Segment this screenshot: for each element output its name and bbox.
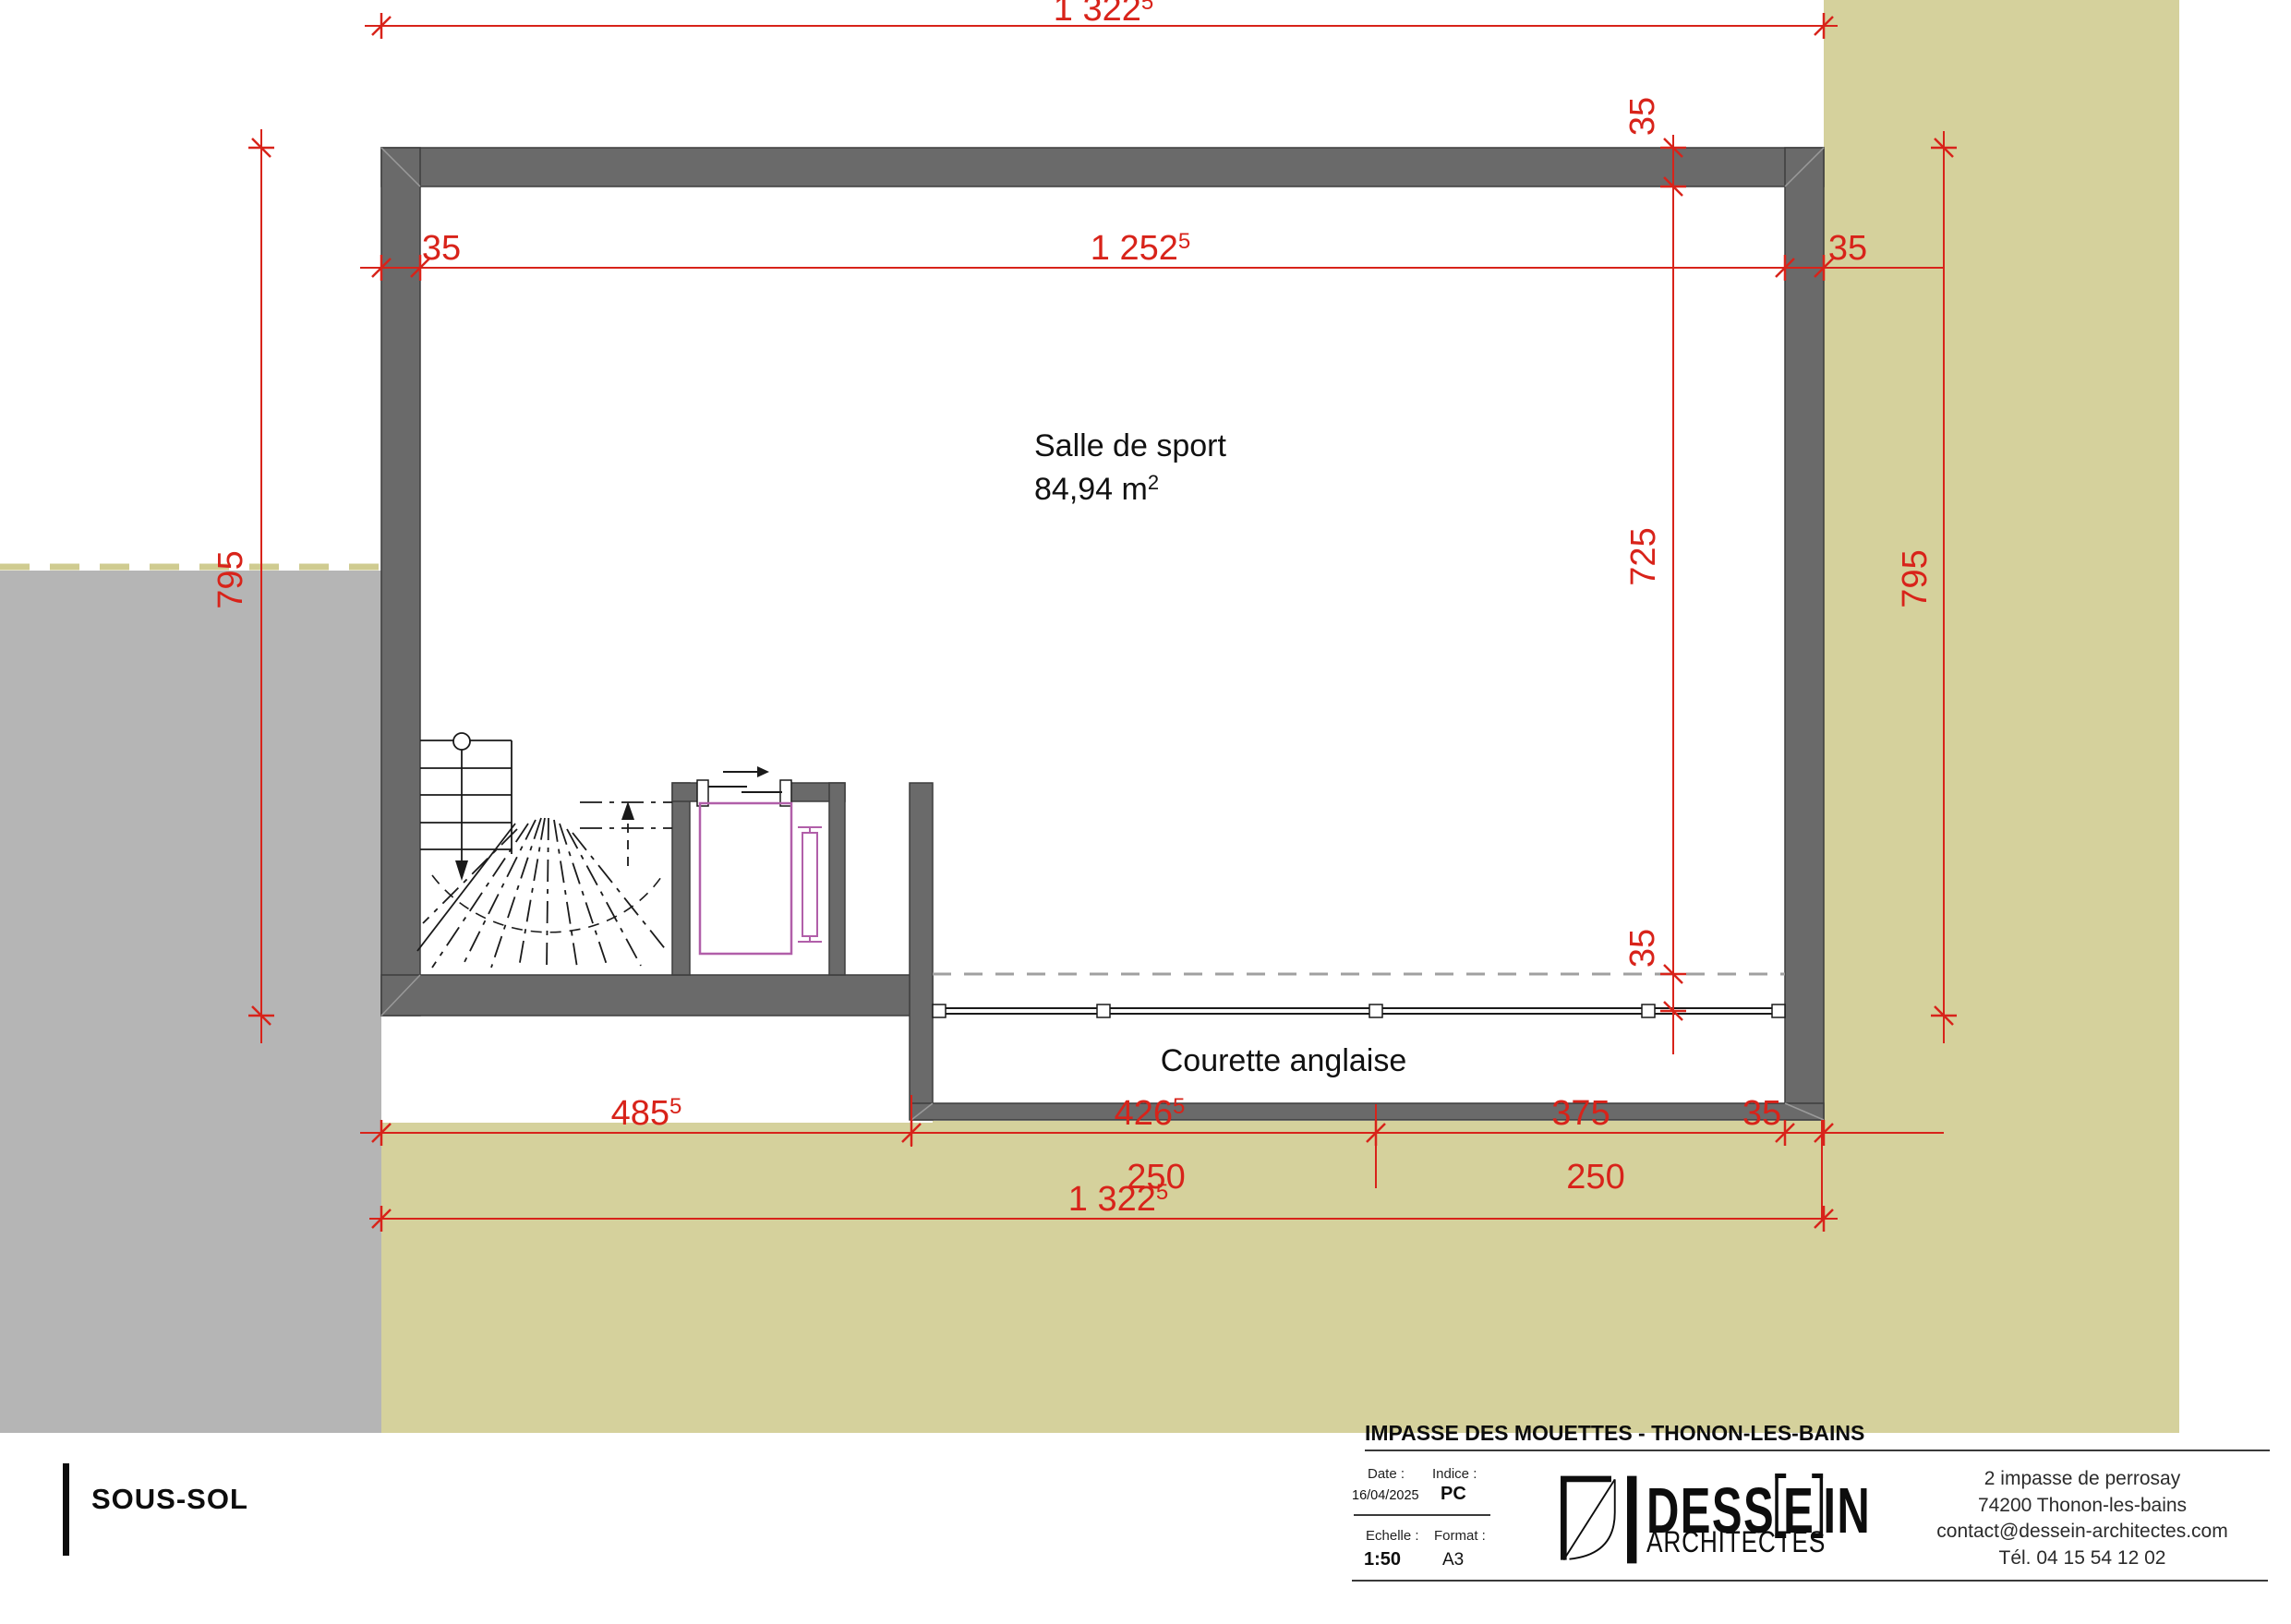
- titleblock-accent-bar: [63, 1463, 69, 1556]
- architect-contact-block: 2 impasse de perrosay 74200 Thonon-les-b…: [1893, 1466, 2272, 1571]
- logo-text-post: IN: [1823, 1474, 1871, 1547]
- dim-inner-height: 725: [1624, 527, 1663, 585]
- elevator-shaft-wall-top-left: [672, 783, 700, 801]
- dim-wall-left: 35: [422, 229, 461, 268]
- dim-height-left: 795: [211, 550, 250, 608]
- room-area-label: 84,94 m2: [1034, 471, 1159, 507]
- dim-wall-top-right: 35: [1623, 97, 1662, 136]
- dim-wall-bottom: 35: [1623, 929, 1662, 968]
- indice-value: PC: [1441, 1484, 1466, 1505]
- stair-walkline-start: [453, 733, 470, 750]
- floor-plan-drawing: 1 3225 1 2525 35 35 795 795 725 35 35 48…: [0, 0, 2291, 1619]
- titleblock-rule-top: [1365, 1450, 2270, 1451]
- format-value: A3: [1442, 1550, 1464, 1570]
- dim-height-right: 795: [1896, 549, 1935, 607]
- indice-label: Indice :: [1432, 1466, 1477, 1482]
- scale-label: Echelle :: [1366, 1528, 1419, 1544]
- contact-address-line1: 2 impasse de perrosay: [1893, 1466, 2272, 1493]
- room-name-label: Salle de sport: [1034, 428, 1226, 463]
- dim-bottom-total: 1 3225: [1068, 1180, 1168, 1219]
- titleblock-rule-middle: [1354, 1514, 1490, 1516]
- dim-top-total: 1 3225: [1054, 0, 1153, 29]
- elevator-shaft-wall-right: [829, 783, 845, 975]
- scale-value: 1:50: [1364, 1549, 1401, 1570]
- project-title: IMPASSE DES MOUETTES - THONON-LES-BAINS: [1365, 1421, 1864, 1446]
- contact-address-line2: 74200 Thonon-les-bains: [1893, 1493, 2272, 1520]
- wall-right: [1785, 148, 1824, 1120]
- wall-courette-bottom: [911, 1103, 1824, 1120]
- terrain-gray-left: [0, 571, 381, 1433]
- architect-logo-subtitle: ARCHITECTES: [1646, 1525, 1826, 1559]
- dim-wall-right: 35: [1828, 229, 1867, 268]
- floor-plan-sheet: 1 3225 1 2525 35 35 795 795 725 35 35 48…: [0, 0, 2291, 1619]
- wall-courette-left: [910, 783, 933, 1120]
- dim-window2: 250: [1566, 1158, 1624, 1197]
- dim-seg3: 375: [1551, 1094, 1610, 1133]
- dim-seg4: 35: [1742, 1094, 1781, 1133]
- wall-left: [381, 148, 420, 1016]
- wall-bottom-left: [381, 975, 933, 1016]
- date-label: Date :: [1368, 1466, 1405, 1482]
- format-label: Format :: [1434, 1528, 1486, 1544]
- contact-phone: Tél. 04 15 54 12 02: [1893, 1546, 2272, 1572]
- drawing-name: SOUS-SOL: [91, 1483, 248, 1516]
- wall-top: [381, 148, 1824, 186]
- date-value: 16/04/2025: [1352, 1488, 1419, 1503]
- dim-inner-width: 1 2525: [1091, 229, 1190, 268]
- terrain-khaki-bottom: [381, 1121, 2179, 1433]
- elevator-shaft-wall-left: [672, 783, 690, 975]
- architect-logo-mark: [1561, 1474, 1644, 1570]
- courette-label: Courette anglaise: [1161, 1043, 1407, 1078]
- contact-email: contact@dessein-architectes.com: [1893, 1519, 2272, 1546]
- titleblock-rule-bottom: [1352, 1580, 2268, 1582]
